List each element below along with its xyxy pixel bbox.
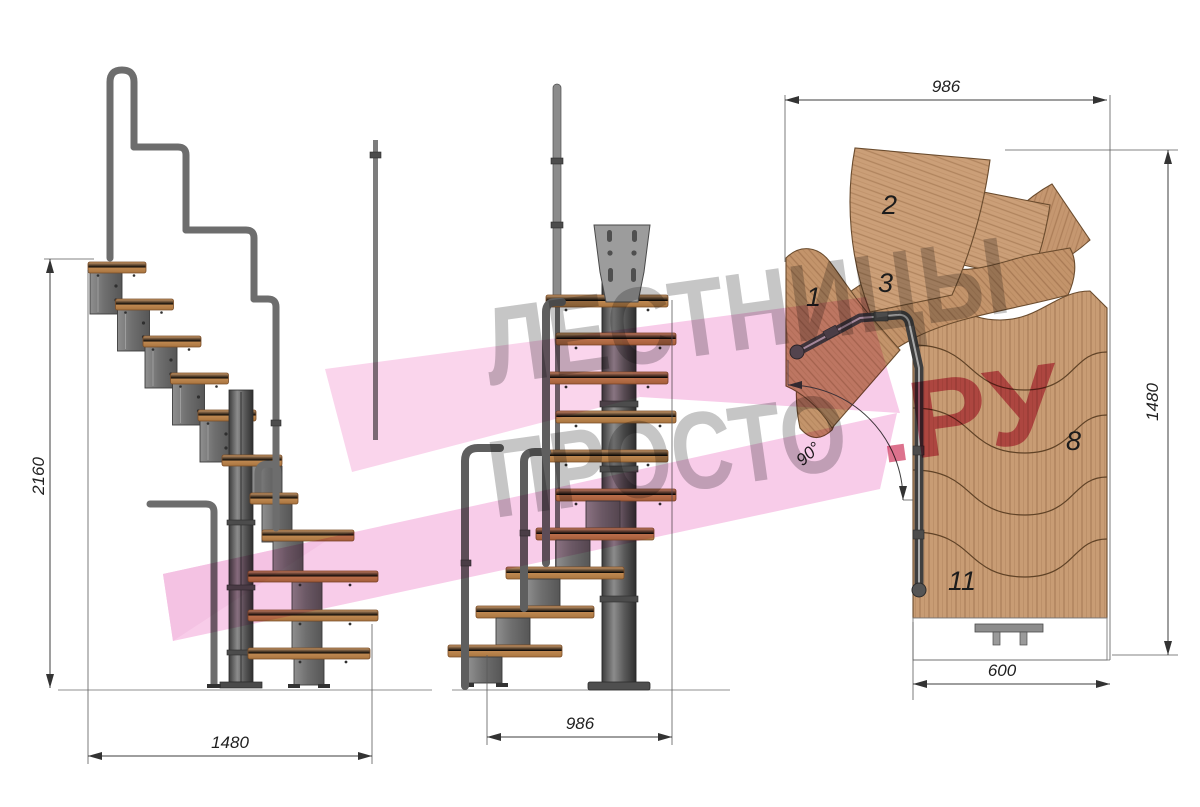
staircase-drawing: 2160 1480 xyxy=(0,0,1200,807)
side-dimensions: 2160 1480 xyxy=(29,259,372,764)
dim-plan-depth: 1480 xyxy=(1143,383,1162,421)
watermark-suffix: .РУ xyxy=(867,340,1069,488)
dim-side-run: 1480 xyxy=(211,733,249,752)
step-label-11: 11 xyxy=(948,566,976,596)
dim-plan-flight-width: 600 xyxy=(988,661,1017,680)
step-label-8: 8 xyxy=(1066,426,1081,456)
dim-side-height: 2160 xyxy=(29,457,48,496)
step-label-2: 2 xyxy=(881,190,897,220)
plan-base-bracket xyxy=(975,624,1043,632)
front-rail-post xyxy=(553,84,561,306)
handrail-loop xyxy=(110,70,134,258)
drawing-canvas: 2160 1480 xyxy=(0,0,1200,807)
dim-plan-width: 986 xyxy=(932,77,961,96)
dim-front-width: 986 xyxy=(566,714,595,733)
